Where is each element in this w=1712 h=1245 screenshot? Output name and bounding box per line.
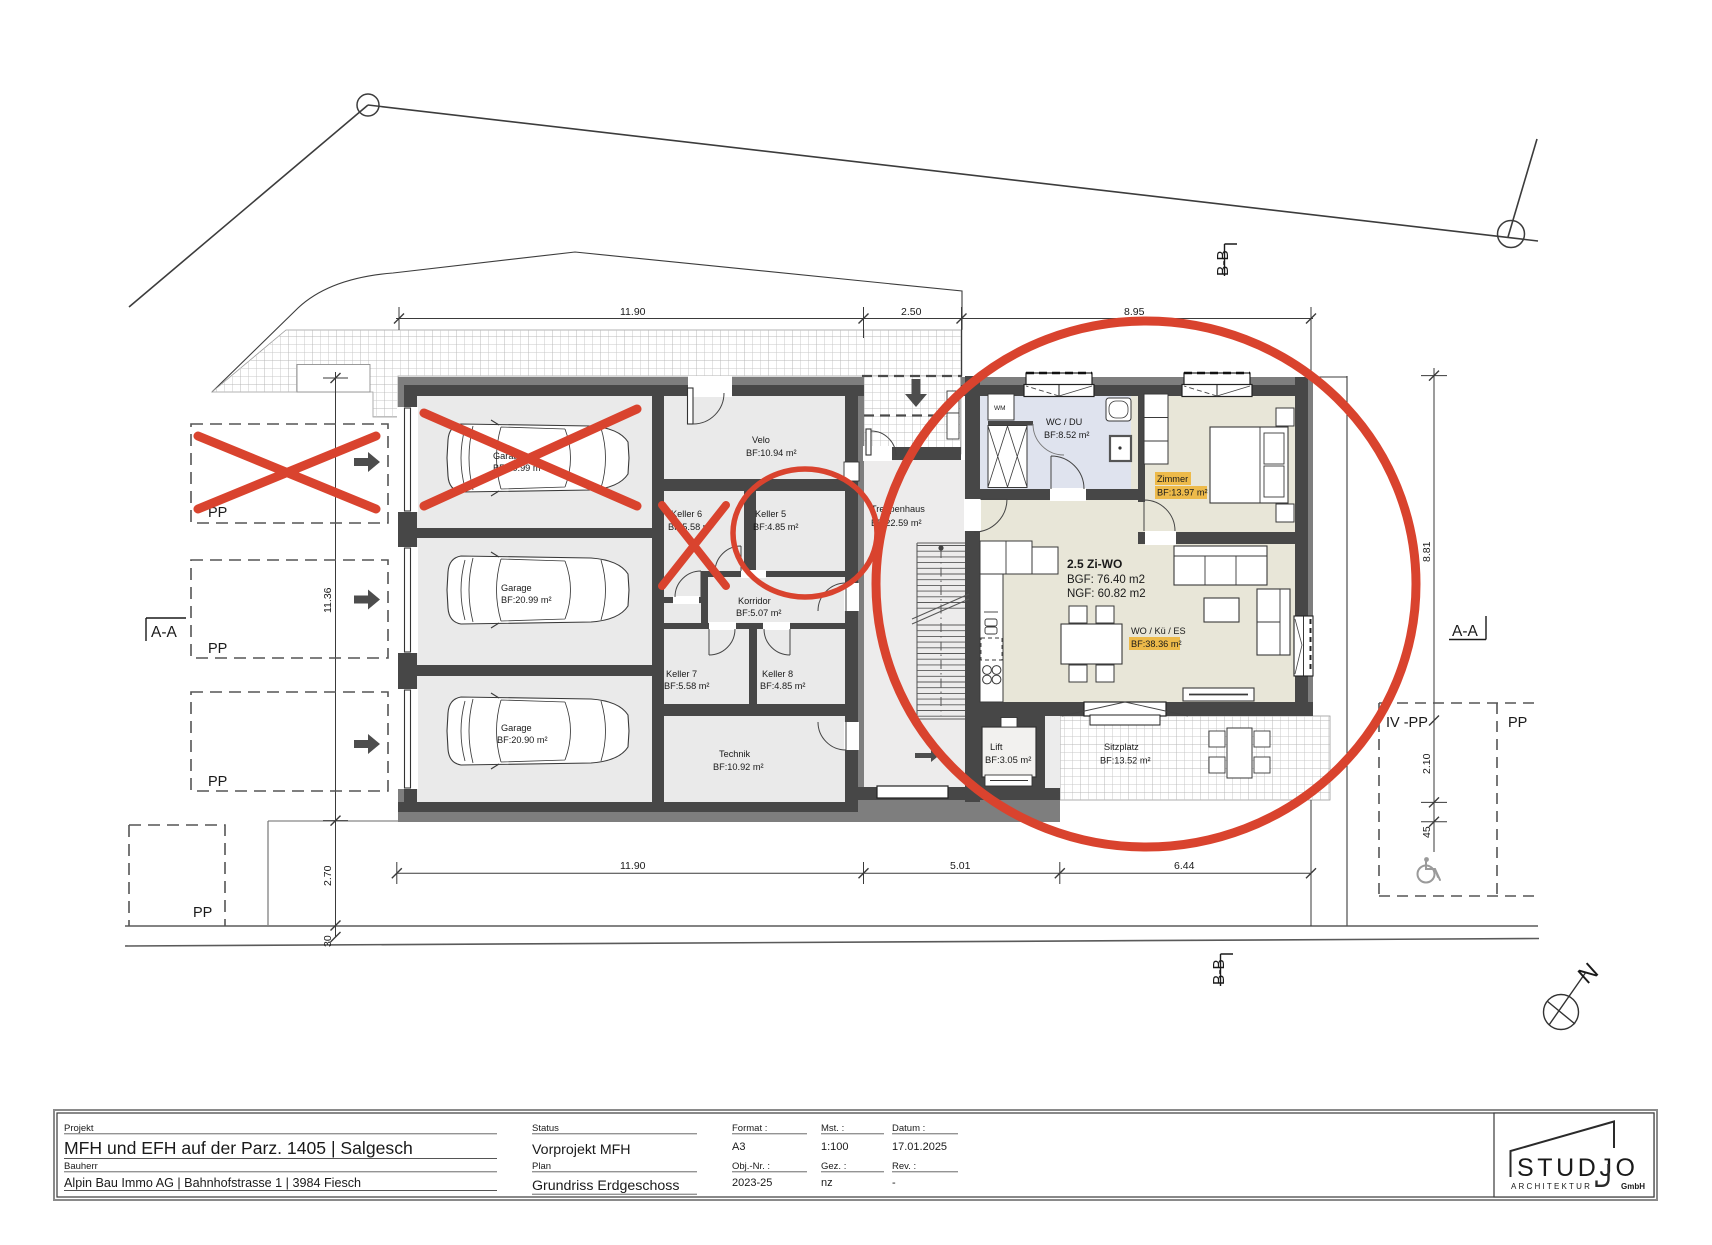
svg-text:BF:20.99 m²: BF:20.99 m² <box>501 595 552 605</box>
svg-text:Vorprojekt MFH: Vorprojekt MFH <box>532 1142 631 1158</box>
svg-text:A3: A3 <box>732 1141 745 1153</box>
svg-text:Alpin Bau Immo AG | Bahnhofstr: Alpin Bau Immo AG | Bahnhofstrasse 1 | 3… <box>64 1176 361 1190</box>
svg-text:A-A: A-A <box>1452 623 1479 640</box>
svg-text:BF:8.52 m²: BF:8.52 m² <box>1044 430 1089 440</box>
svg-text:Lift: Lift <box>990 741 1003 752</box>
svg-text:Obj.-Nr. :: Obj.-Nr. : <box>732 1161 770 1172</box>
svg-text:ARCHITEKTUR: ARCHITEKTUR <box>1511 1182 1592 1191</box>
svg-text:BF:20.90 m²: BF:20.90 m² <box>497 735 548 745</box>
svg-text:Velo: Velo <box>752 435 770 445</box>
svg-text:1:100: 1:100 <box>821 1141 849 1153</box>
svg-text:Sitzplatz: Sitzplatz <box>1104 742 1139 752</box>
svg-text:2.10: 2.10 <box>1421 753 1433 774</box>
svg-text:BF:4.85 m²: BF:4.85 m² <box>760 681 805 691</box>
svg-text:Grundriss Erdgeschoss: Grundriss Erdgeschoss <box>532 1178 679 1194</box>
svg-text:NGF: 60.82 m2: NGF: 60.82 m2 <box>1067 588 1146 600</box>
svg-text:WO / Kü / ES: WO / Kü / ES <box>1131 626 1186 636</box>
svg-text:Plan: Plan <box>532 1161 551 1172</box>
svg-text:IV -PP: IV -PP <box>1386 715 1428 731</box>
svg-text:BF:5.07 m²: BF:5.07 m² <box>736 608 781 618</box>
svg-text:8.81: 8.81 <box>1421 541 1433 562</box>
svg-text:Projekt: Projekt <box>64 1123 94 1134</box>
svg-text:2.50: 2.50 <box>901 306 922 318</box>
svg-text:BF:4.85 m²: BF:4.85 m² <box>753 522 798 532</box>
svg-text:Bauherr: Bauherr <box>64 1161 98 1172</box>
svg-text:Status: Status <box>532 1123 559 1134</box>
svg-text:B-B: B-B <box>1215 250 1232 276</box>
svg-text:PP: PP <box>208 774 227 790</box>
svg-text:11.36: 11.36 <box>322 587 334 613</box>
svg-text:11.90: 11.90 <box>620 306 646 318</box>
svg-text:45: 45 <box>1421 826 1433 838</box>
svg-text:BF:10.94 m²: BF:10.94 m² <box>746 448 797 458</box>
svg-text:-: - <box>892 1177 896 1189</box>
svg-text:Mst. :: Mst. : <box>821 1123 844 1134</box>
svg-text:PP: PP <box>1508 715 1527 731</box>
svg-text:B-B: B-B <box>1211 959 1228 985</box>
svg-text:30: 30 <box>322 935 334 947</box>
svg-text:A-A: A-A <box>151 624 178 641</box>
svg-text:Korridor: Korridor <box>738 596 771 606</box>
svg-text:Keller 5: Keller 5 <box>755 509 786 519</box>
svg-text:BF:5.58 m²: BF:5.58 m² <box>664 681 709 691</box>
svg-text:8.95: 8.95 <box>1124 306 1145 318</box>
svg-text:Technik: Technik <box>719 749 751 759</box>
svg-text:BF:3.05 m²: BF:3.05 m² <box>985 754 1031 765</box>
svg-text:Datum :: Datum : <box>892 1123 925 1134</box>
svg-text:Garage: Garage <box>501 723 532 733</box>
svg-text:2.5 Zi-WO: 2.5 Zi-WO <box>1067 557 1122 571</box>
svg-text:Format :: Format : <box>732 1123 767 1134</box>
svg-text:Keller 8: Keller 8 <box>762 669 793 679</box>
svg-text:WC / DU: WC / DU <box>1046 417 1082 427</box>
svg-text:BF:13.52 m²: BF:13.52 m² <box>1100 756 1151 766</box>
svg-text:MFH und EFH auf der Parz. 1405: MFH und EFH auf der Parz. 1405 | Salgesc… <box>64 1138 413 1158</box>
svg-text:2023-25: 2023-25 <box>732 1177 772 1189</box>
svg-text:11.90: 11.90 <box>620 860 646 872</box>
svg-text:BGF: 76.40 m2: BGF: 76.40 m2 <box>1067 574 1145 586</box>
svg-text:Gez. :: Gez. : <box>821 1161 846 1172</box>
svg-text:Rev. :: Rev. : <box>892 1161 916 1172</box>
svg-text:17.01.2025: 17.01.2025 <box>892 1141 947 1153</box>
svg-text:PP: PP <box>193 905 212 921</box>
svg-text:Treppenhaus: Treppenhaus <box>871 504 925 514</box>
svg-text:BF:13.97 m²: BF:13.97 m² <box>1157 488 1208 498</box>
svg-text:BF:38.36 m²: BF:38.36 m² <box>1131 639 1182 649</box>
svg-text:GmbH: GmbH <box>1621 1182 1645 1191</box>
svg-text:6.44: 6.44 <box>1174 860 1195 872</box>
svg-text:WM: WM <box>994 405 1006 412</box>
svg-text:BF:10.92 m²: BF:10.92 m² <box>713 762 764 772</box>
svg-text:5.01: 5.01 <box>950 860 971 872</box>
svg-text:Garage: Garage <box>501 583 532 593</box>
svg-text:STUDJO: STUDJO <box>1517 1154 1639 1182</box>
svg-text:Keller 7: Keller 7 <box>666 669 697 679</box>
svg-text:PP: PP <box>208 641 227 657</box>
svg-text:nz: nz <box>821 1177 833 1189</box>
svg-text:Zimmer: Zimmer <box>1157 474 1188 484</box>
svg-text:2.70: 2.70 <box>322 865 334 886</box>
